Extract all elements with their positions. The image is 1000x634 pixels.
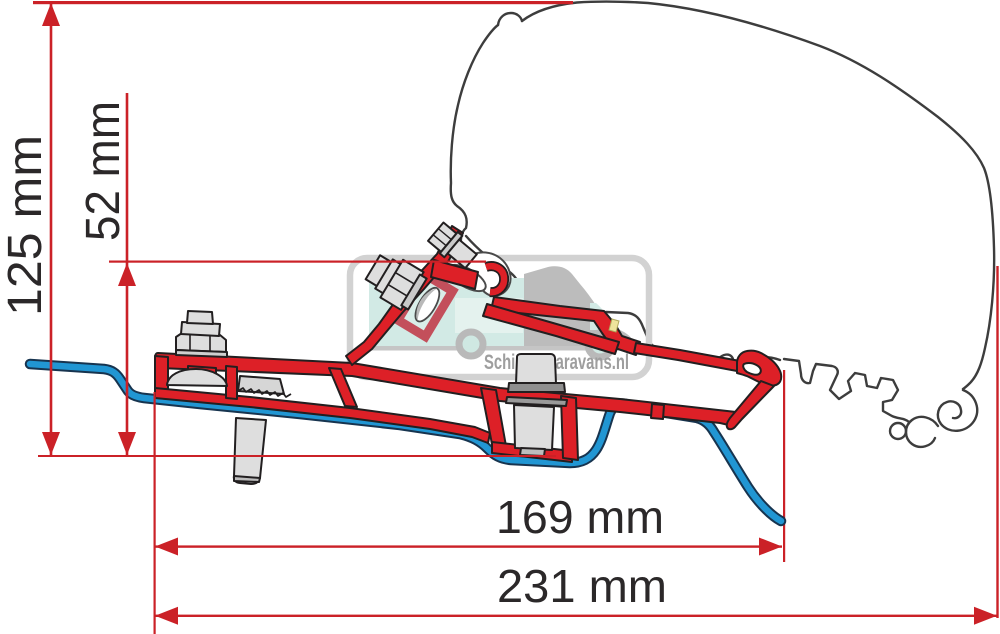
svg-text:52 mm: 52 mm	[77, 101, 130, 241]
svg-text:169 mm: 169 mm	[496, 491, 664, 543]
svg-text:231 mm: 231 mm	[497, 560, 667, 612]
svg-text:Schippercaravans.nl: Schippercaravans.nl	[484, 351, 629, 374]
svg-text:125 mm: 125 mm	[0, 135, 52, 316]
